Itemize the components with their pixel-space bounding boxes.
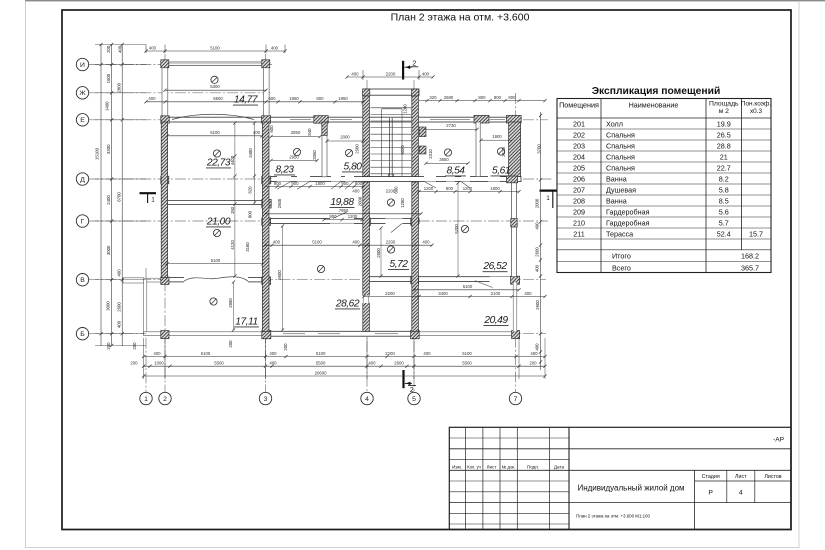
svg-text:1200: 1200 xyxy=(348,214,358,219)
svg-text:Помещения: Помещения xyxy=(559,101,599,110)
svg-text:2200: 2200 xyxy=(386,71,396,76)
svg-text:900: 900 xyxy=(494,95,502,100)
svg-text:5,72: 5,72 xyxy=(389,259,408,270)
svg-text:400: 400 xyxy=(368,361,376,366)
svg-text:8.5: 8.5 xyxy=(719,197,729,206)
svg-text:15.7: 15.7 xyxy=(749,230,763,239)
svg-text:900: 900 xyxy=(291,181,299,186)
svg-text:400: 400 xyxy=(117,320,122,328)
svg-text:И: И xyxy=(80,62,85,69)
svg-text:840: 840 xyxy=(307,128,312,136)
svg-text:Лист: Лист xyxy=(735,474,747,480)
svg-text:Ж: Ж xyxy=(79,90,86,97)
svg-text:Итого: Итого xyxy=(612,252,631,261)
svg-text:20600: 20600 xyxy=(315,370,328,375)
svg-text:2000: 2000 xyxy=(358,196,363,206)
svg-text:200: 200 xyxy=(130,361,138,366)
svg-text:400: 400 xyxy=(269,361,277,366)
svg-text:400: 400 xyxy=(352,188,360,193)
svg-text:800: 800 xyxy=(316,96,324,101)
svg-text:400: 400 xyxy=(422,239,430,244)
svg-text:Лист: Лист xyxy=(487,464,498,469)
svg-text:600: 600 xyxy=(355,181,363,186)
svg-text:52.4: 52.4 xyxy=(717,230,731,239)
svg-text:5500: 5500 xyxy=(462,361,472,366)
svg-text:Д: Д xyxy=(80,176,85,183)
svg-text:Б: Б xyxy=(80,331,85,338)
svg-text:Экспликация помещений: Экспликация помещений xyxy=(592,86,721,97)
svg-text:3480: 3480 xyxy=(248,148,253,158)
svg-text:203: 203 xyxy=(573,142,585,151)
svg-text:5500: 5500 xyxy=(213,96,223,101)
svg-text:210: 210 xyxy=(573,219,585,228)
svg-text:-АР: -АР xyxy=(773,437,785,444)
svg-text:5300: 5300 xyxy=(210,84,220,89)
svg-text:400: 400 xyxy=(535,343,540,351)
svg-text:15100: 15100 xyxy=(95,147,100,160)
svg-text:3180: 3180 xyxy=(245,242,250,252)
svg-text:3300: 3300 xyxy=(106,144,111,154)
svg-text:5100: 5100 xyxy=(312,239,322,244)
svg-text:Р: Р xyxy=(708,490,713,497)
svg-text:19,88: 19,88 xyxy=(330,197,354,208)
svg-text:№ док.: № док. xyxy=(501,464,515,469)
svg-text:3650: 3650 xyxy=(439,157,449,162)
svg-text:Ванна: Ванна xyxy=(606,175,627,184)
svg-text:2200: 2200 xyxy=(385,291,395,296)
svg-text:2600: 2600 xyxy=(394,361,404,366)
svg-text:м 2: м 2 xyxy=(719,108,730,115)
svg-text:Е: Е xyxy=(80,117,85,124)
svg-text:1950: 1950 xyxy=(338,96,348,101)
svg-text:8700: 8700 xyxy=(117,192,122,202)
svg-text:22.7: 22.7 xyxy=(717,164,731,173)
svg-text:1200: 1200 xyxy=(463,186,473,191)
svg-text:х0.3: х0.3 xyxy=(750,108,763,115)
svg-text:400: 400 xyxy=(149,45,157,50)
svg-text:8,23: 8,23 xyxy=(275,164,294,175)
svg-text:820: 820 xyxy=(247,186,252,194)
svg-text:2600: 2600 xyxy=(376,248,381,258)
svg-text:200: 200 xyxy=(283,343,288,351)
svg-text:5100: 5100 xyxy=(210,45,220,50)
svg-text:26,52: 26,52 xyxy=(482,261,507,272)
svg-text:2310: 2310 xyxy=(428,149,433,159)
svg-text:28,62: 28,62 xyxy=(335,298,360,309)
svg-text:1200: 1200 xyxy=(403,104,408,114)
svg-text:3700: 3700 xyxy=(537,144,542,154)
svg-text:400: 400 xyxy=(253,130,261,135)
svg-text:204: 204 xyxy=(573,153,585,162)
svg-text:3400: 3400 xyxy=(438,291,448,296)
svg-text:400: 400 xyxy=(535,222,540,230)
svg-text:5: 5 xyxy=(412,396,416,403)
svg-text:200: 200 xyxy=(106,342,111,350)
svg-text:Терасса: Терасса xyxy=(606,230,633,239)
svg-text:1000: 1000 xyxy=(154,361,164,366)
svg-text:400: 400 xyxy=(153,351,161,356)
svg-text:5.8: 5.8 xyxy=(719,186,729,195)
svg-text:План 2 этажа на отм. +3.600 М1: План 2 этажа на отм. +3.600 М1:100 xyxy=(576,513,650,518)
svg-text:400: 400 xyxy=(422,71,430,76)
svg-text:17,11: 17,11 xyxy=(235,316,258,327)
svg-text:201: 201 xyxy=(573,120,585,129)
svg-text:7: 7 xyxy=(514,396,518,403)
svg-text:168.2: 168.2 xyxy=(741,252,759,261)
svg-text:5,61: 5,61 xyxy=(492,165,510,176)
svg-text:5500: 5500 xyxy=(316,361,326,366)
svg-text:2060: 2060 xyxy=(312,150,317,160)
svg-text:2600: 2600 xyxy=(117,302,122,312)
svg-text:2950: 2950 xyxy=(289,154,299,159)
svg-text:211: 211 xyxy=(573,230,584,239)
svg-text:5100: 5100 xyxy=(463,284,473,289)
svg-text:1800: 1800 xyxy=(315,181,325,186)
svg-text:5,80: 5,80 xyxy=(343,161,362,172)
svg-text:4: 4 xyxy=(365,396,369,403)
svg-text:205: 205 xyxy=(573,164,585,173)
svg-text:Спальня: Спальня xyxy=(606,131,635,140)
svg-text:5.6: 5.6 xyxy=(719,208,729,217)
svg-text:Индивидуальный жилой дом: Индивидуальный жилой дом xyxy=(577,484,684,493)
svg-text:Подп.: Подп. xyxy=(527,464,539,469)
svg-text:Спальня: Спальня xyxy=(606,142,635,151)
svg-text:21,00: 21,00 xyxy=(206,216,231,227)
svg-text:1950: 1950 xyxy=(289,96,299,101)
svg-text:3000: 3000 xyxy=(106,301,111,311)
svg-text:200: 200 xyxy=(529,361,537,366)
svg-text:Спальня: Спальня xyxy=(606,153,635,162)
svg-text:200: 200 xyxy=(106,45,111,53)
svg-text:5100: 5100 xyxy=(211,258,221,263)
svg-text:Всего: Всего xyxy=(612,263,631,272)
svg-text:1: 1 xyxy=(144,396,148,403)
svg-text:900: 900 xyxy=(341,181,349,186)
svg-text:Пон.коэф.: Пон.коэф. xyxy=(741,101,771,108)
svg-text:2600: 2600 xyxy=(535,247,540,257)
svg-text:4120: 4120 xyxy=(230,240,235,250)
svg-text:400: 400 xyxy=(535,264,540,272)
svg-text:21: 21 xyxy=(720,153,728,162)
svg-text:5200: 5200 xyxy=(454,224,459,234)
svg-text:800: 800 xyxy=(247,210,252,218)
svg-text:900: 900 xyxy=(446,186,454,191)
svg-text:800: 800 xyxy=(508,95,516,100)
svg-text:1800: 1800 xyxy=(490,186,500,191)
svg-text:Наименование: Наименование xyxy=(629,101,679,110)
svg-text:5100: 5100 xyxy=(316,351,326,356)
svg-text:Г: Г xyxy=(81,218,85,225)
svg-text:2200: 2200 xyxy=(385,351,395,356)
svg-text:В: В xyxy=(80,277,85,284)
svg-text:400: 400 xyxy=(271,45,279,50)
svg-text:3: 3 xyxy=(264,396,268,403)
svg-text:1600: 1600 xyxy=(106,73,111,83)
svg-text:2850: 2850 xyxy=(291,130,301,135)
svg-text:400: 400 xyxy=(148,96,156,101)
svg-text:Душевая: Душевая xyxy=(606,186,636,195)
svg-text:2100: 2100 xyxy=(491,291,501,296)
svg-text:2600: 2600 xyxy=(535,300,540,310)
svg-text:320: 320 xyxy=(429,95,437,100)
svg-text:5.7: 5.7 xyxy=(719,219,729,228)
svg-text:2: 2 xyxy=(410,387,414,394)
svg-text:5500: 5500 xyxy=(214,361,224,366)
svg-text:Дата: Дата xyxy=(554,464,565,469)
svg-text:200: 200 xyxy=(132,342,137,350)
svg-text:2: 2 xyxy=(163,396,167,403)
svg-text:207: 207 xyxy=(573,186,585,195)
svg-text:209: 209 xyxy=(573,208,585,217)
svg-text:Листов: Листов xyxy=(764,474,781,480)
svg-text:6100: 6100 xyxy=(201,351,211,356)
svg-text:26.5: 26.5 xyxy=(717,131,731,140)
svg-text:5100: 5100 xyxy=(462,351,472,356)
svg-text:600: 600 xyxy=(268,96,276,101)
svg-text:20,49: 20,49 xyxy=(483,315,508,326)
svg-text:2000: 2000 xyxy=(340,135,350,140)
svg-text:150: 150 xyxy=(230,206,235,214)
svg-text:400: 400 xyxy=(351,71,359,76)
svg-text:2200: 2200 xyxy=(386,239,396,244)
svg-text:400: 400 xyxy=(118,45,123,53)
svg-text:400: 400 xyxy=(269,351,277,356)
svg-text:206: 206 xyxy=(573,175,585,184)
svg-text:19.9: 19.9 xyxy=(717,120,731,129)
svg-text:1400: 1400 xyxy=(105,101,110,111)
svg-text:2880: 2880 xyxy=(228,298,233,308)
svg-text:900: 900 xyxy=(274,181,282,186)
svg-text:Гардеробная: Гардеробная xyxy=(606,219,650,228)
svg-text:2200: 2200 xyxy=(386,188,396,193)
svg-text:Площадь: Площадь xyxy=(709,101,739,108)
svg-text:8.2: 8.2 xyxy=(719,175,729,184)
svg-text:900: 900 xyxy=(329,214,337,219)
svg-text:202: 202 xyxy=(573,131,585,140)
svg-text:600: 600 xyxy=(269,125,274,133)
svg-text:3000: 3000 xyxy=(106,245,111,255)
svg-text:Холл: Холл xyxy=(606,120,623,129)
svg-text:2000: 2000 xyxy=(535,198,540,208)
svg-text:Изм.: Изм. xyxy=(452,464,462,469)
svg-text:400: 400 xyxy=(423,351,431,356)
svg-text:2: 2 xyxy=(412,60,416,67)
svg-text:5100: 5100 xyxy=(210,130,220,135)
svg-text:5600: 5600 xyxy=(277,270,282,280)
svg-text:Спальня: Спальня xyxy=(606,164,635,173)
svg-text:2800: 2800 xyxy=(117,82,122,92)
svg-text:1200: 1200 xyxy=(424,186,434,191)
svg-text:800: 800 xyxy=(478,95,486,100)
svg-text:28.8: 28.8 xyxy=(717,142,731,151)
svg-text:1280: 1280 xyxy=(400,198,405,208)
svg-text:8,54: 8,54 xyxy=(446,165,465,176)
svg-text:7950: 7950 xyxy=(339,208,349,213)
svg-text:208: 208 xyxy=(573,197,585,206)
svg-text:1900: 1900 xyxy=(492,134,502,139)
svg-text:200: 200 xyxy=(228,340,233,348)
svg-text:2400: 2400 xyxy=(106,195,111,205)
svg-text:22,73: 22,73 xyxy=(206,157,231,168)
svg-text:14,77: 14,77 xyxy=(234,95,258,106)
svg-text:План 2 этажа на отм. +3.600: План 2 этажа на отм. +3.600 xyxy=(391,12,530,24)
svg-text:4: 4 xyxy=(739,490,743,497)
svg-text:400: 400 xyxy=(273,239,281,244)
svg-text:Ванна: Ванна xyxy=(606,197,627,206)
svg-text:Кол. уч: Кол. уч xyxy=(467,464,481,469)
svg-text:2730: 2730 xyxy=(446,123,456,128)
svg-text:400: 400 xyxy=(352,239,360,244)
svg-text:2680: 2680 xyxy=(444,95,454,100)
svg-text:2900: 2900 xyxy=(355,144,360,154)
svg-text:3020: 3020 xyxy=(400,145,405,155)
svg-text:Гардеробная: Гардеробная xyxy=(606,208,650,217)
svg-text:400: 400 xyxy=(117,269,122,277)
svg-text:Стадия: Стадия xyxy=(702,474,720,480)
svg-text:3120: 3120 xyxy=(501,147,506,157)
svg-text:365.7: 365.7 xyxy=(741,263,759,272)
svg-text:400: 400 xyxy=(524,291,532,296)
svg-text:2500: 2500 xyxy=(277,198,282,208)
